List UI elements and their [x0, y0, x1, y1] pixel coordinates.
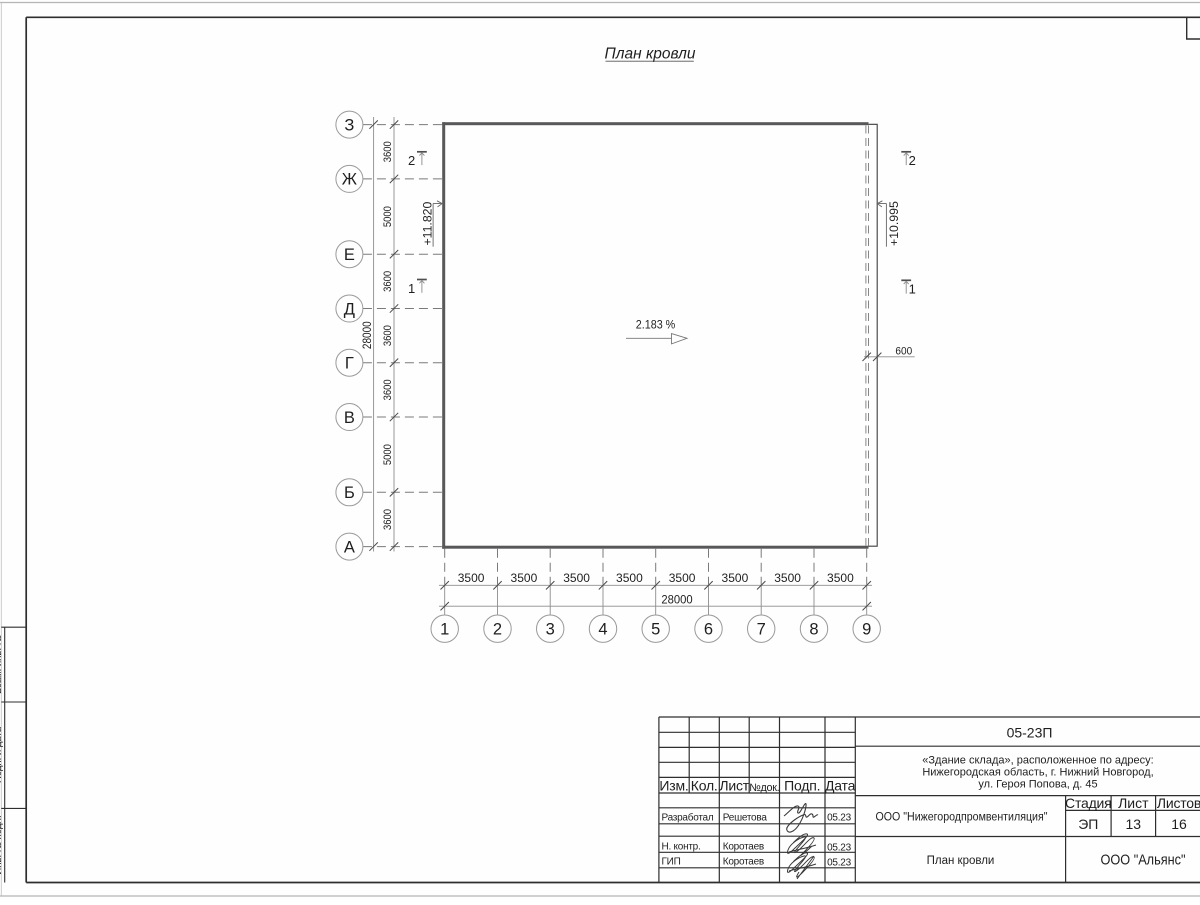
svg-text:05-23П: 05-23П	[1007, 725, 1053, 741]
svg-text:4: 4	[598, 621, 607, 639]
svg-text:05.23: 05.23	[827, 858, 851, 869]
svg-text:7: 7	[757, 621, 766, 639]
svg-text:В: В	[344, 409, 355, 427]
svg-text:13: 13	[1126, 816, 1142, 832]
svg-text:ул. Героя Попова, д. 45: ул. Героя Попова, д. 45	[978, 779, 1097, 791]
svg-text:3500: 3500	[511, 571, 538, 585]
svg-text:План кровли: План кровли	[605, 46, 696, 63]
svg-text:Инв. № подл.: Инв. № подл.	[0, 815, 4, 874]
svg-text:Дата: Дата	[825, 778, 856, 794]
svg-text:Ж: Ж	[342, 171, 358, 189]
svg-text:Н. контр.: Н. контр.	[662, 842, 701, 853]
svg-text:+10.995: +10.995	[887, 201, 901, 246]
svg-text:5000: 5000	[382, 206, 394, 227]
svg-text:1: 1	[408, 281, 415, 296]
svg-text:9: 9	[862, 621, 871, 639]
svg-text:6: 6	[704, 621, 713, 639]
svg-text:05.23: 05.23	[827, 813, 851, 824]
svg-text:2.183 %: 2.183 %	[636, 317, 676, 331]
svg-text:3500: 3500	[669, 571, 696, 585]
svg-text:3600: 3600	[382, 141, 394, 162]
svg-text:Коротаев: Коротаев	[723, 842, 764, 853]
svg-text:3600: 3600	[382, 271, 394, 292]
svg-text:3600: 3600	[382, 379, 394, 400]
svg-text:5000: 5000	[382, 444, 394, 465]
svg-text:№док.: №док.	[749, 782, 779, 794]
svg-text:Подп. и дата: Подп. и дата	[0, 726, 4, 783]
svg-text:Взам. инв. №: Взам. инв. №	[0, 635, 4, 694]
svg-text:2: 2	[909, 153, 916, 168]
svg-text:16: 16	[1171, 816, 1187, 832]
svg-text:3600: 3600	[382, 325, 394, 346]
svg-text:05.23: 05.23	[827, 843, 851, 854]
svg-text:Кол.: Кол.	[691, 778, 718, 794]
svg-text:600: 600	[895, 345, 912, 357]
svg-text:+11.820: +11.820	[420, 202, 434, 246]
svg-text:Решетова: Решетова	[723, 813, 768, 824]
svg-text:3500: 3500	[827, 571, 854, 585]
svg-text:3600: 3600	[382, 509, 394, 530]
svg-text:8: 8	[809, 621, 818, 639]
svg-text:ГИП: ГИП	[662, 857, 681, 868]
svg-text:3500: 3500	[458, 571, 485, 585]
svg-text:Изм.: Изм.	[659, 778, 688, 794]
svg-text:Нижегородская область, г. Нижн: Нижегородская область, г. Нижний Новгоро…	[922, 767, 1153, 779]
svg-text:ООО "Нижегородпромвентиляция": ООО "Нижегородпромвентиляция"	[876, 811, 1048, 823]
svg-text:3500: 3500	[774, 571, 801, 585]
svg-text:3500: 3500	[563, 571, 590, 585]
svg-text:План кровли: План кровли	[927, 855, 995, 867]
svg-text:З: З	[344, 116, 354, 134]
svg-text:1: 1	[909, 282, 916, 297]
svg-text:ООО "Альянс": ООО "Альянс"	[1101, 853, 1186, 869]
svg-text:А: А	[344, 538, 355, 556]
svg-text:Е: Е	[344, 246, 355, 264]
svg-text:Лист: Лист	[719, 778, 749, 794]
svg-text:Подп.: Подп.	[784, 778, 820, 794]
svg-text:3500: 3500	[722, 571, 749, 585]
svg-text:Листов: Листов	[1157, 795, 1200, 811]
svg-text:«Здание склада», расположенное: «Здание склада», расположенное по адресу…	[922, 755, 1153, 767]
svg-text:Д: Д	[344, 300, 355, 318]
svg-text:Б: Б	[344, 484, 355, 502]
svg-text:2: 2	[408, 153, 415, 168]
svg-text:ЭП: ЭП	[1078, 816, 1098, 832]
svg-text:28000: 28000	[661, 593, 693, 607]
svg-text:28000: 28000	[360, 321, 374, 349]
svg-text:Г: Г	[345, 355, 354, 373]
svg-text:Разработал: Разработал	[662, 812, 714, 824]
svg-text:1: 1	[440, 621, 449, 639]
svg-text:Лист: Лист	[1118, 795, 1149, 811]
svg-text:Коротаев: Коротаев	[723, 857, 764, 868]
svg-text:5: 5	[651, 621, 660, 639]
svg-text:Стадия: Стадия	[1065, 795, 1112, 811]
svg-text:2: 2	[493, 621, 502, 639]
svg-text:3: 3	[546, 621, 555, 639]
svg-text:3500: 3500	[616, 571, 643, 585]
